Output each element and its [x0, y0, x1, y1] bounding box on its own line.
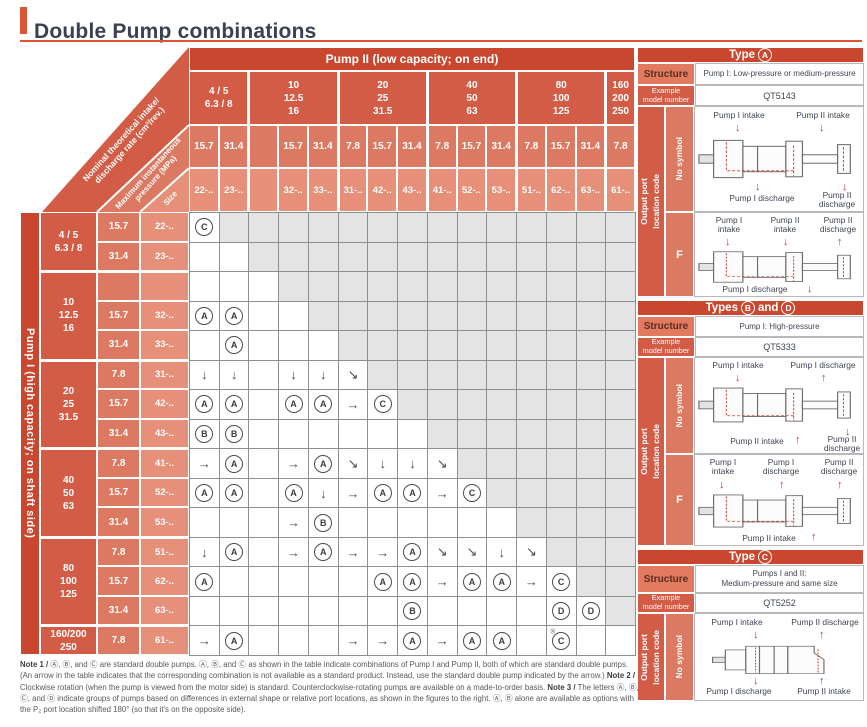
substitute-arrow: → [347, 633, 360, 648]
type-label: Types [706, 302, 738, 314]
type-a-header: Type A [637, 47, 864, 63]
matrix-cell [487, 508, 517, 538]
flow-arrow-up-icon: ↑ [837, 236, 843, 248]
matrix-cell-unavailable [577, 361, 607, 391]
title-accent-bar [20, 7, 27, 34]
substitute-arrow: → [287, 515, 300, 530]
matrix-cell-unavailable [398, 390, 428, 420]
matrix-cell-unavailable [249, 243, 279, 273]
footnotes: Note 1 / Ⓐ, Ⓑ, and Ⓒ are standard double… [20, 659, 640, 715]
matrix-cell-unavailable [606, 331, 636, 361]
pump2-header-band: Pump II (low capacity; on end) [189, 47, 635, 71]
pump-drawing [697, 137, 863, 181]
matrix-cell-unavailable [398, 302, 428, 332]
group-letter: A [225, 455, 243, 473]
substitute-arrow: ↓ [409, 456, 416, 471]
matrix-cell [220, 243, 250, 273]
col-size-cell: 32-.. [278, 168, 308, 212]
matrix-cell: A [398, 567, 428, 597]
matrix-cell-unavailable [487, 331, 517, 361]
col-size-cell: 62-.. [546, 168, 576, 212]
structure-value: Pump I: High-pressure [695, 316, 864, 337]
port-label: Pump I discharge [703, 285, 807, 294]
matrix-cell: C [190, 213, 220, 243]
flow-arrow-down-icon: ↓ [807, 283, 813, 295]
row-size-cell: 43-.. [140, 419, 189, 449]
group-letter: A [225, 336, 243, 354]
matrix-cell: A [220, 390, 250, 420]
group-letter: A [314, 395, 332, 413]
matrix-cell-unavailable [368, 243, 398, 273]
row-pressure-cell: 7.8 [97, 625, 140, 655]
row-pressure-cell: 31.4 [97, 596, 140, 626]
row-pressure-cell: 15.7 [97, 301, 140, 331]
flow-arrow-up-icon: ↑ [811, 531, 817, 543]
matrix-cell-unavailable [606, 567, 636, 597]
note1-label: Note 1 / [20, 660, 48, 669]
matrix-cell: A [190, 479, 220, 509]
row-size-cell: 23-.. [140, 242, 189, 272]
matrix-cell-unavailable [428, 213, 458, 243]
col-pressure-cell: 15.7 [189, 125, 219, 168]
matrix-cell: A [487, 567, 517, 597]
matrix-cell-unavailable [339, 272, 369, 302]
col-pressure-cell [248, 125, 278, 168]
port-label: Pump II intake [719, 437, 795, 446]
pump-diagram-type-a-no-symbol: Pump I intake ↓ Pump II intake ↓ ↓ Pump … [694, 106, 864, 212]
matrix-cell [220, 567, 250, 597]
substitute-arrow: ↘ [437, 544, 448, 560]
matrix-cell-unavailable [577, 331, 607, 361]
output-port-code-label: Output port location code [637, 613, 665, 701]
type-label: Type [729, 49, 755, 61]
port-label: Pump I discharge [783, 361, 863, 370]
variant-code-f: F [665, 212, 694, 297]
flow-arrow-up-icon: ↑ [837, 479, 843, 491]
matrix-cell [249, 272, 279, 302]
matrix-cell [249, 390, 279, 420]
matrix-cell: A [368, 567, 398, 597]
note3-label: Note 3 / [547, 683, 575, 692]
col-pressure-cell: 7.8 [516, 125, 546, 168]
col-group-header: 80 100 125 [516, 71, 605, 125]
matrix-cell-unavailable [577, 272, 607, 302]
pump-diagram-type-c-no-symbol: Pump I intake ↓ Pump II discharge ↑ ↓ Pu… [694, 613, 864, 701]
matrix-cell-unavailable [547, 538, 577, 568]
matrix-cell-unavailable [368, 213, 398, 243]
matrix-cell: → [279, 508, 309, 538]
flow-arrow-up-icon: ↑ [779, 479, 785, 491]
col-group-header: 40 50 63 [427, 71, 516, 125]
matrix-cell-unavailable [428, 331, 458, 361]
matrix-cell: → [517, 567, 547, 597]
col-size-cell: 22-.. [189, 168, 219, 212]
matrix-cell-unavailable [428, 272, 458, 302]
matrix-cell-unavailable [547, 243, 577, 273]
port-label: Pump I intake [703, 216, 755, 235]
substitute-arrow: → [376, 545, 389, 560]
row-pressure-cell: 15.7 [97, 566, 140, 596]
matrix-cell-unavailable [517, 390, 547, 420]
catalog-page: Double Pump combinations Pump II (low ca… [0, 0, 867, 727]
matrix-cell-unavailable [517, 449, 547, 479]
flow-arrow-down-icon: ↓ [725, 236, 731, 248]
matrix-cell [577, 626, 607, 656]
col-size-cell [248, 168, 278, 212]
row-size-cell: 22-.. [140, 212, 189, 242]
col-size-cell: 43-.. [397, 168, 427, 212]
matrix-cell [190, 243, 220, 273]
substitute-arrow: ↓ [380, 456, 387, 471]
circled-letter-b: B [741, 301, 755, 315]
substitute-arrow: → [287, 545, 300, 560]
col-pressure-cell: 15.7 [457, 125, 487, 168]
matrix-cell: → [190, 449, 220, 479]
matrix-cell [249, 508, 279, 538]
matrix-cell: A [309, 390, 339, 420]
row-pressure-cell: 15.7 [97, 389, 140, 419]
group-letter: A [493, 573, 511, 591]
variant-code-no-symbol: No symbol [665, 106, 694, 212]
matrix-cell-unavailable [547, 331, 577, 361]
pump-drawing [697, 642, 863, 676]
matrix-cell: → [279, 449, 309, 479]
flow-arrow-down-icon: ↓ [783, 236, 789, 248]
matrix-cell-unavailable [487, 213, 517, 243]
combination-matrix: CAAA↓↓↓↓↘AAAA→CBB→A→A↘↓↓↘AAA↓→AA→C→B↓A→A… [189, 212, 636, 656]
matrix-cell-unavailable [428, 390, 458, 420]
matrix-cell [249, 626, 279, 656]
group-letter: C [463, 484, 481, 502]
type-a-panel: Type A Structure Pump I: Low-pressure or… [637, 47, 864, 297]
matrix-cell [220, 272, 250, 302]
types-b-d-panel: Types B and D Structure Pump I: High-pre… [637, 300, 864, 546]
matrix-cell-unavailable [547, 420, 577, 450]
example-model-value: QT5143 [695, 85, 864, 106]
col-size-cell: 41-.. [427, 168, 457, 212]
group-letter: A [314, 543, 332, 561]
matrix-cell-unavailable [547, 449, 577, 479]
matrix-cell-unavailable [398, 331, 428, 361]
col-size-cell: 61-.. [605, 168, 635, 212]
matrix-cell: ↓ [190, 538, 220, 568]
matrix-cell: ↓ [309, 479, 339, 509]
matrix-cell-unavailable [487, 479, 517, 509]
variant-code-no-symbol: No symbol [665, 613, 694, 701]
flow-arrow-down-icon: ↓ [755, 181, 761, 193]
col-size-cell: 31-.. [338, 168, 368, 212]
group-letter: A [225, 632, 243, 650]
group-letter: C [552, 573, 570, 591]
group-letter: B [225, 425, 243, 443]
substitute-arrow: ↘ [467, 544, 478, 560]
port-label: Pump I discharge [699, 687, 779, 696]
row-pressure-cell [97, 271, 140, 301]
matrix-cell [249, 538, 279, 568]
matrix-cell [458, 508, 488, 538]
note1-text: Ⓐ, Ⓑ, and Ⓒ are standard double pumps. Ⓐ… [20, 660, 628, 680]
pump-diagram-types-bd-f: Pump I intake ↓ Pump I discharge ↑ Pump … [694, 454, 864, 546]
row-group-header: 40 50 63 [40, 448, 97, 537]
matrix-cell-unavailable [487, 243, 517, 273]
matrix-cell-unavailable [487, 449, 517, 479]
col-size-cell: 51-.. [516, 168, 546, 212]
port-label: Pump II discharge [813, 216, 863, 235]
matrix-cell-unavailable [517, 479, 547, 509]
matrix-cell-unavailable [606, 508, 636, 538]
variant-code-no-symbol: No symbol [665, 357, 694, 454]
matrix-cell: A [398, 626, 428, 656]
col-size-cell: 63-.. [576, 168, 606, 212]
matrix-cell: → [339, 538, 369, 568]
matrix-cell-unavailable [339, 243, 369, 273]
matrix-cell: → [279, 538, 309, 568]
port-label: Pump I intake [699, 458, 747, 477]
row-size-cell: 52-.. [140, 478, 189, 508]
substitute-arrow: → [198, 633, 211, 648]
port-label: Pump II discharge [811, 191, 863, 210]
title-underline [20, 40, 862, 42]
matrix-cell [517, 597, 547, 627]
substitute-arrow: → [436, 486, 449, 501]
matrix-cell: ↓ [220, 361, 250, 391]
group-letter: A [225, 543, 243, 561]
matrix-cell [368, 420, 398, 450]
matrix-cell [487, 597, 517, 627]
port-label: Pump I intake [699, 618, 775, 627]
group-letter: B [403, 602, 421, 620]
matrix-cell-unavailable [279, 213, 309, 243]
port-label: Pump II discharge [815, 458, 863, 477]
matrix-cell-unavailable [606, 449, 636, 479]
matrix-cell-unavailable [577, 567, 607, 597]
matrix-cell: ↓ [190, 361, 220, 391]
col-group-header: 20 25 31.5 [338, 71, 427, 125]
matrix-cell: ↓ [368, 449, 398, 479]
row-size-cell: 62-.. [140, 566, 189, 596]
group-letter: C [374, 395, 392, 413]
structure-value: Pumps I and II: Medium-pressure and same… [695, 565, 864, 593]
matrix-cell-unavailable [398, 272, 428, 302]
matrix-cell: ↓ [279, 361, 309, 391]
matrix-cell: B [220, 420, 250, 450]
col-pressure-cell: 7.8 [338, 125, 368, 168]
matrix-cell-unavailable [547, 213, 577, 243]
reference-mark: ※ [550, 627, 556, 636]
col-size-cell: 42-.. [367, 168, 397, 212]
matrix-cell-unavailable [517, 272, 547, 302]
substitute-arrow: ↓ [320, 486, 327, 501]
matrix-cell-unavailable [577, 213, 607, 243]
col-pressure-cell: 7.8 [605, 125, 635, 168]
matrix-cell-unavailable [487, 272, 517, 302]
port-label: Pump II discharge [787, 618, 863, 627]
matrix-cell: B [398, 597, 428, 627]
row-pressure-cell: 15.7 [97, 212, 140, 242]
note2-label: Note 2 / [607, 671, 635, 680]
matrix-cell-unavailable [517, 420, 547, 450]
matrix-cell: A [398, 538, 428, 568]
row-group-header: 80 100 125 [40, 537, 97, 626]
matrix-cell: A [458, 567, 488, 597]
substitute-arrow: → [347, 397, 360, 412]
substitute-arrow: ↓ [498, 545, 505, 560]
matrix-cell-unavailable [458, 449, 488, 479]
matrix-cell-unavailable [309, 272, 339, 302]
matrix-cell-unavailable [458, 361, 488, 391]
matrix-cell-unavailable [458, 331, 488, 361]
matrix-cell-unavailable [309, 213, 339, 243]
substitute-arrow: ↓ [201, 545, 208, 560]
pump-diagram-type-a-f: Pump I intake ↓ Pump II intake ↓ Pump II… [694, 212, 864, 297]
structure-value: Pump I: Low-pressure or medium-pressure [695, 63, 864, 85]
corner-diagonal-header: Nominal theoretical intake/ discharge ra… [20, 47, 189, 212]
type-c-header: Type C [637, 549, 864, 565]
group-letter: D [582, 602, 600, 620]
matrix-cell-unavailable [606, 420, 636, 450]
matrix-cell [220, 508, 250, 538]
circled-letter-c: C [758, 550, 772, 564]
matrix-cell [249, 449, 279, 479]
matrix-cell [428, 508, 458, 538]
substitute-arrow: ↓ [201, 367, 208, 382]
matrix-cell-unavailable [606, 479, 636, 509]
col-size-cell: 33-.. [308, 168, 338, 212]
matrix-cell: A [279, 479, 309, 509]
col-pressure-cell: 31.4 [219, 125, 249, 168]
group-letter: A [225, 484, 243, 502]
matrix-cell: ↘ [339, 449, 369, 479]
matrix-cell-unavailable [458, 302, 488, 332]
matrix-cell-unavailable [577, 538, 607, 568]
group-letter: A [403, 484, 421, 502]
row-pressure-cell: 7.8 [97, 448, 140, 478]
group-letter: A [195, 307, 213, 325]
group-letter: A [225, 307, 243, 325]
flow-arrow-up-icon: ↑ [821, 372, 827, 384]
group-letter: A [374, 484, 392, 502]
matrix-cell: A [309, 449, 339, 479]
matrix-cell-unavailable [220, 213, 250, 243]
col-pressure-cell: 31.4 [576, 125, 606, 168]
matrix-cell-unavailable [547, 302, 577, 332]
matrix-cell-unavailable [577, 420, 607, 450]
pump-diagram-types-bd-no-symbol: Pump I intake ↓ Pump I discharge ↑ Pump … [694, 357, 864, 454]
group-letter: A [314, 455, 332, 473]
pump-drawing [697, 249, 863, 285]
example-model-label: Example model number [637, 593, 695, 613]
col-pressure-cell: 15.7 [546, 125, 576, 168]
matrix-cell [190, 272, 220, 302]
matrix-cell [190, 597, 220, 627]
group-letter: B [314, 514, 332, 532]
group-letter: A [225, 395, 243, 413]
flow-arrow-down-icon: ↓ [819, 122, 825, 134]
matrix-cell-unavailable [577, 508, 607, 538]
flow-arrow-up-icon: ↑ [819, 629, 825, 641]
port-label: Pump II intake [785, 111, 861, 120]
row-size-cell: 31-.. [140, 360, 189, 390]
group-letter: D [552, 602, 570, 620]
pump-drawing [697, 385, 863, 425]
pump1-header-band: Pump I (high capacity; on shaft side) [20, 212, 40, 655]
matrix-cell [458, 597, 488, 627]
row-pressure-cell: 15.7 [97, 478, 140, 508]
matrix-cell: A [398, 479, 428, 509]
structure-label: Structure [637, 565, 695, 593]
row-size-cell: 63-.. [140, 596, 189, 626]
matrix-cell-unavailable [547, 390, 577, 420]
port-label: Pump II intake [759, 216, 811, 235]
matrix-cell-unavailable [309, 302, 339, 332]
row-pressure-cell: 31.4 [97, 330, 140, 360]
matrix-cell-unavailable [487, 420, 517, 450]
example-model-value: QT5333 [695, 337, 864, 357]
matrix-cell-unavailable [368, 302, 398, 332]
substitute-arrow: → [436, 574, 449, 589]
substitute-arrow: → [525, 574, 538, 589]
group-letter: A [463, 573, 481, 591]
substitute-arrow: → [347, 486, 360, 501]
group-letter: A [285, 395, 303, 413]
row-pressure-cell: 7.8 [97, 360, 140, 390]
substitute-arrow: ↘ [348, 367, 359, 383]
matrix-cell-unavailable [606, 302, 636, 332]
matrix-cell-unavailable [458, 420, 488, 450]
col-pressure-cell: 31.4 [308, 125, 338, 168]
col-size-cell: 52-.. [457, 168, 487, 212]
row-size-cell: 51-.. [140, 537, 189, 567]
matrix-cell: → [190, 626, 220, 656]
matrix-cell [398, 420, 428, 450]
matrix-cell [309, 597, 339, 627]
matrix-cell: A [220, 626, 250, 656]
group-letter: C [195, 218, 213, 236]
matrix-cell [279, 626, 309, 656]
matrix-cell-unavailable [577, 243, 607, 273]
matrix-cell-unavailable [368, 361, 398, 391]
matrix-cell: A [368, 479, 398, 509]
row-size-cell: 32-.. [140, 301, 189, 331]
note2-text: Clockwise rotation (when the pump is vie… [20, 683, 547, 692]
row-pressure-cell: 7.8 [97, 537, 140, 567]
matrix-cell-unavailable [606, 213, 636, 243]
substitute-arrow: ↓ [290, 367, 297, 382]
matrix-cell: B [190, 420, 220, 450]
flow-arrow-up-icon: ↑ [795, 434, 801, 446]
matrix-cell-unavailable [517, 243, 547, 273]
matrix-cell: C [368, 390, 398, 420]
port-label: Pump II discharge [819, 435, 865, 454]
row-group-header: 4 / 5 6.3 / 8 [40, 212, 97, 271]
type-label: Type [729, 551, 755, 563]
matrix-cell: A [190, 567, 220, 597]
matrix-cell [249, 302, 279, 332]
matrix-cell [428, 597, 458, 627]
example-model-label: Example model number [637, 85, 695, 106]
substitute-arrow: → [436, 633, 449, 648]
matrix-cell: ↘ [428, 538, 458, 568]
matrix-cell-unavailable [458, 272, 488, 302]
matrix-cell-unavailable [279, 243, 309, 273]
matrix-cell: ↓ [398, 449, 428, 479]
matrix-cell [339, 508, 369, 538]
matrix-cell-unavailable [606, 272, 636, 302]
matrix-cell [309, 420, 339, 450]
matrix-cell-unavailable [339, 331, 369, 361]
matrix-cell [249, 420, 279, 450]
col-size-cell: 53-.. [486, 168, 516, 212]
